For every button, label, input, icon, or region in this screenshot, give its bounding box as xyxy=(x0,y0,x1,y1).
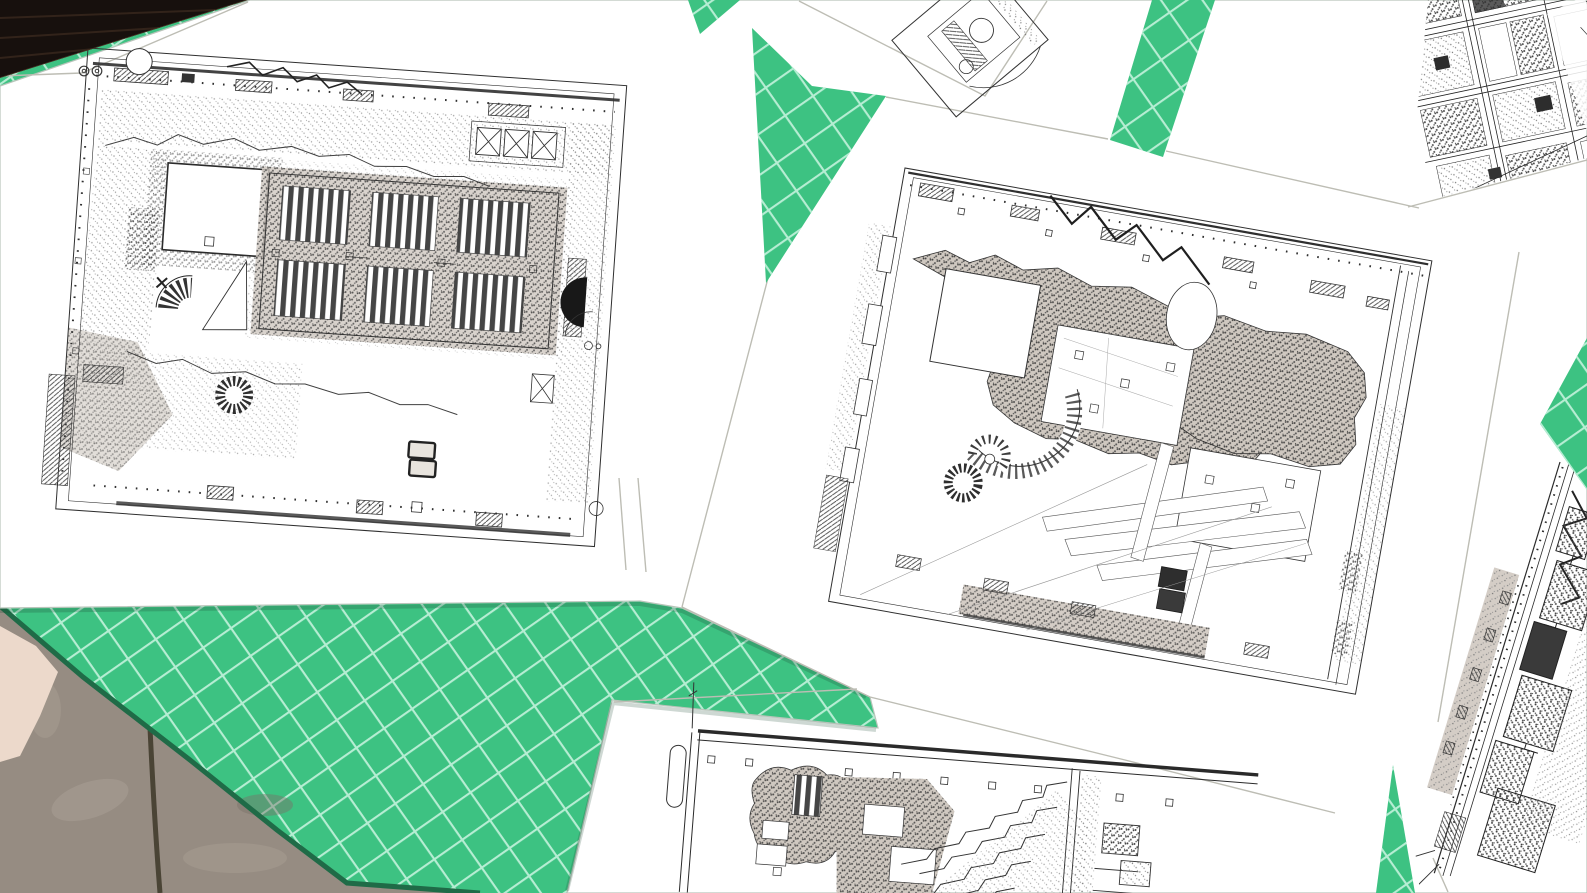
scene-canvas xyxy=(0,0,1587,893)
scene xyxy=(0,0,1587,893)
plan-a-dark-table xyxy=(407,441,437,477)
plan-a-louver-array xyxy=(250,166,567,355)
